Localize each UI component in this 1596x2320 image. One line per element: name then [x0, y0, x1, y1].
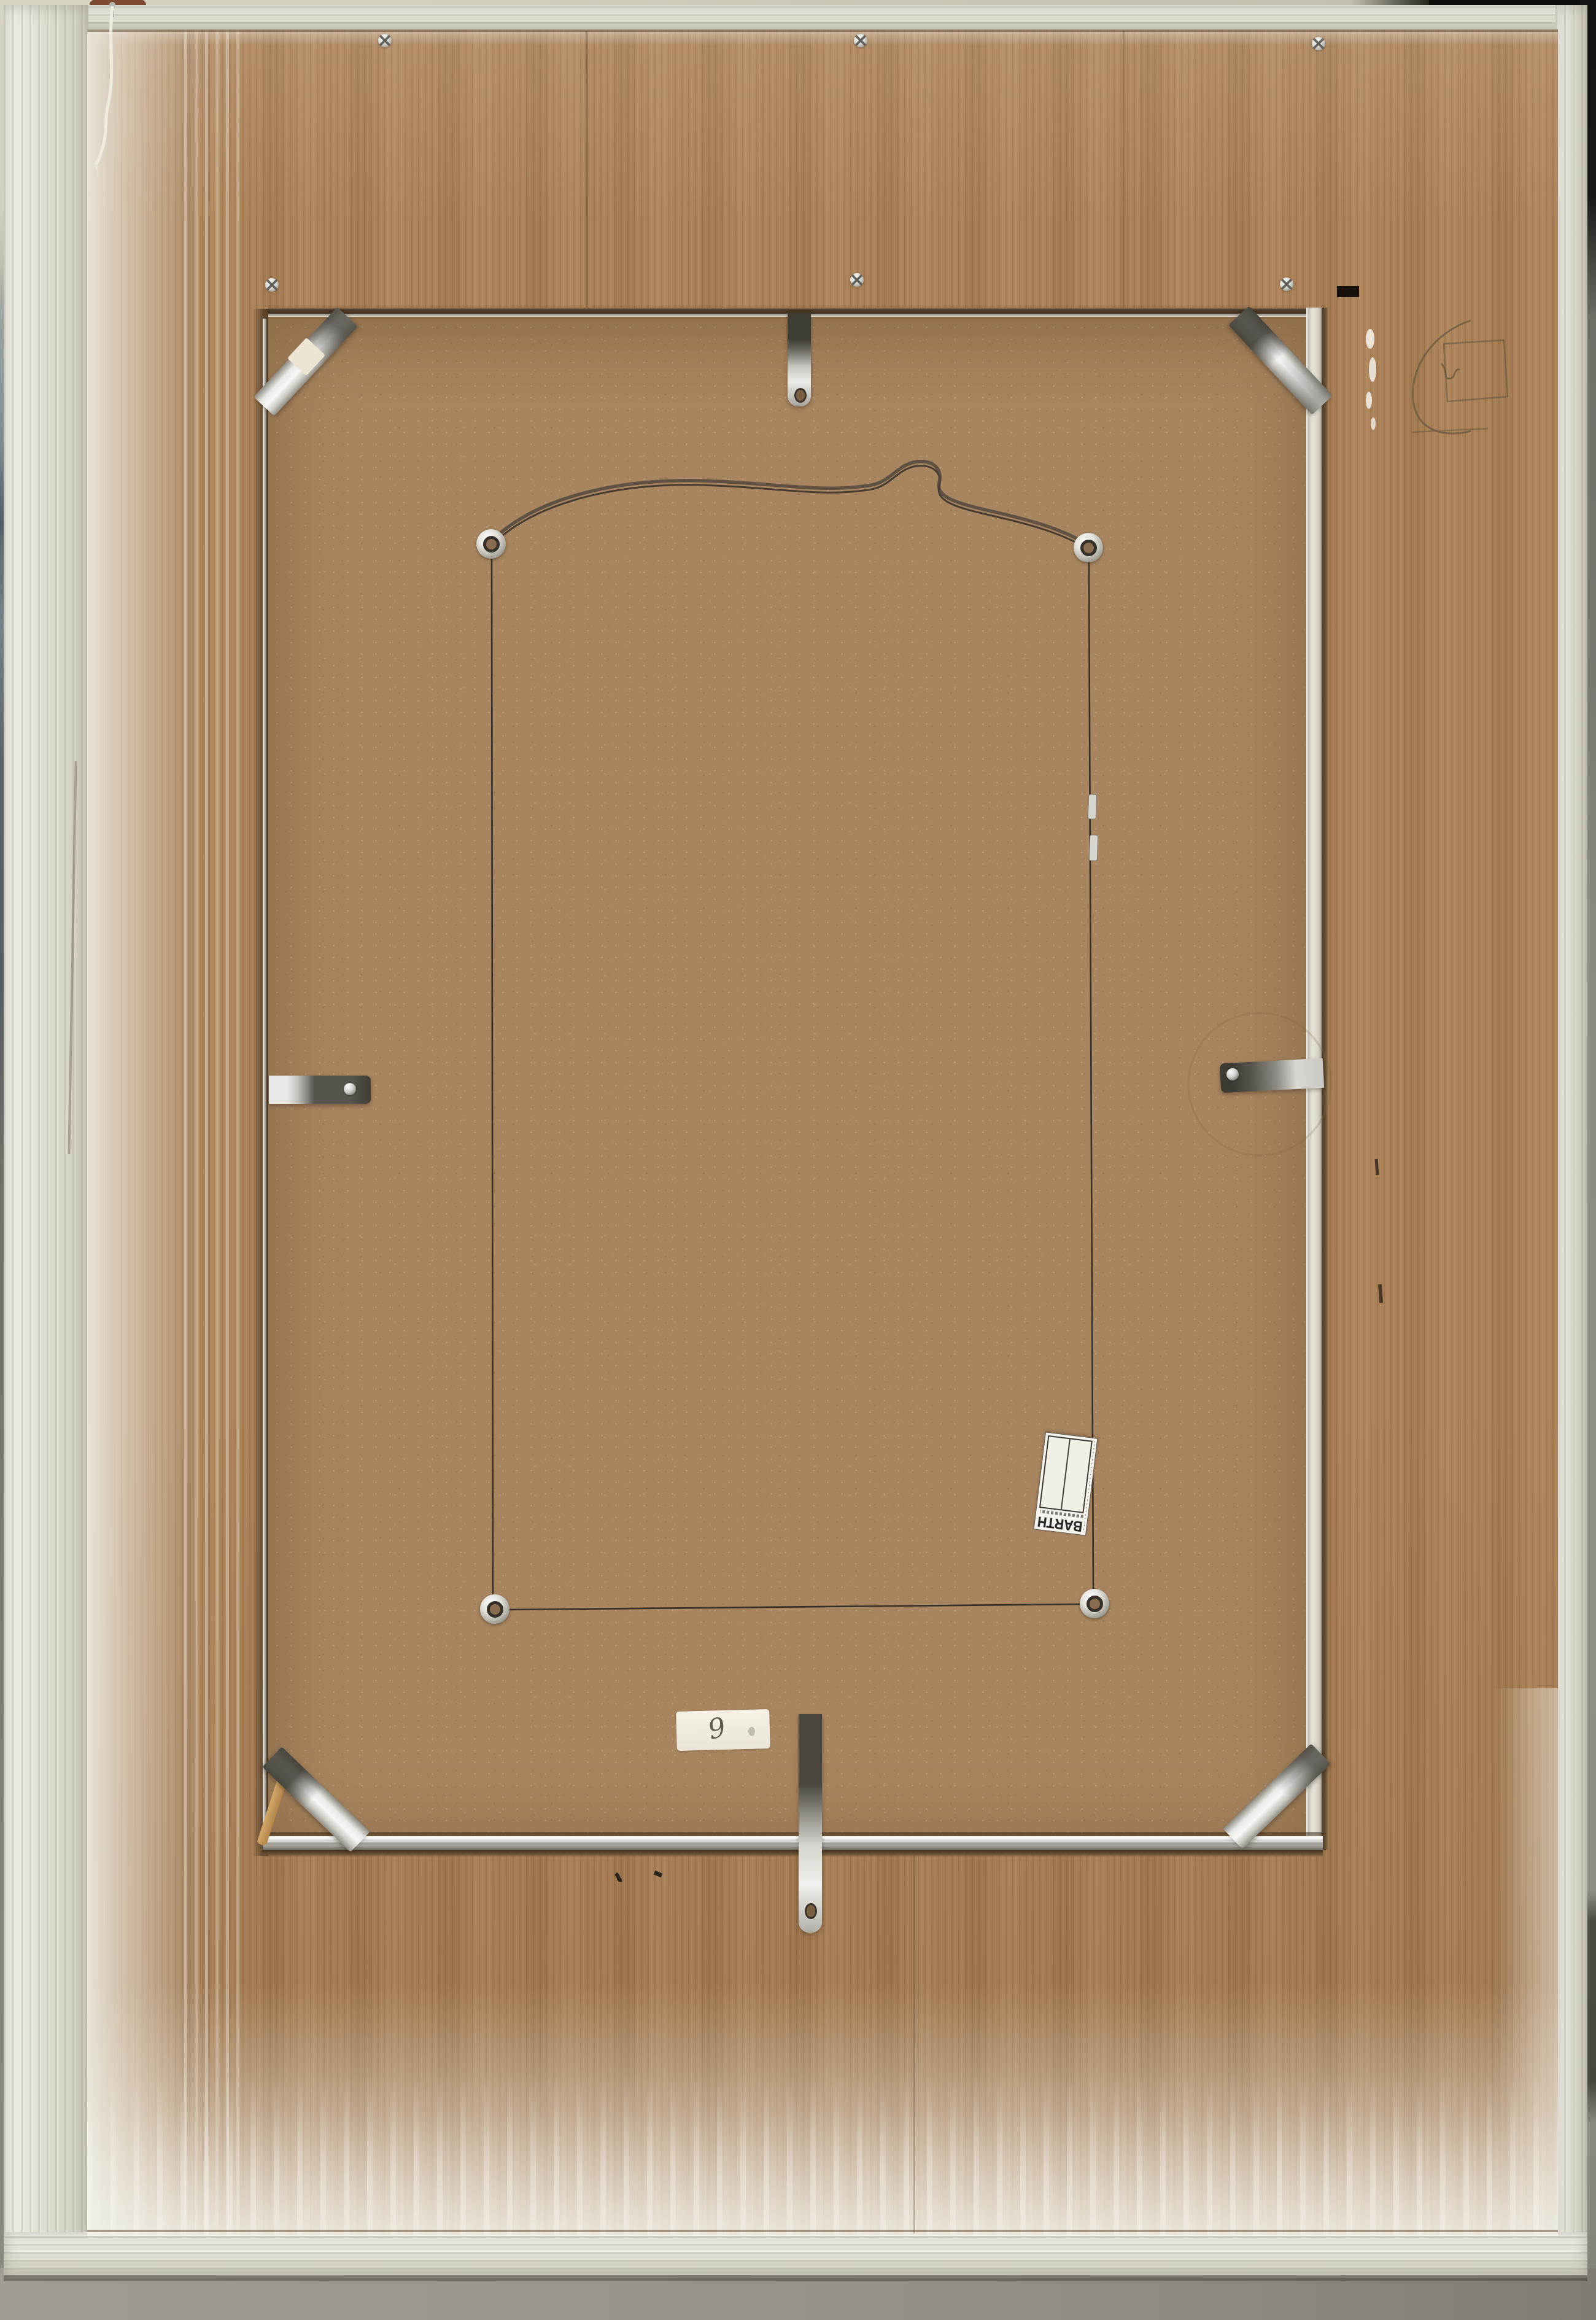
- handwritten-tag: 9: [676, 1709, 770, 1751]
- eyelet-screw-bottom-left: [480, 1594, 509, 1624]
- eyelet-hole: [1087, 1596, 1103, 1612]
- label-table-divider: [1061, 1439, 1071, 1509]
- pencil-doodle-line: [1412, 429, 1488, 432]
- cord-crimp: [1088, 794, 1096, 819]
- tag-smudge: [748, 1727, 755, 1736]
- panel-screw: [265, 278, 279, 292]
- scratch-circle: [1188, 1013, 1331, 1155]
- eyelet-hole: [483, 536, 500, 553]
- panel-screw: [1280, 277, 1293, 291]
- wood-knot: [1380, 1284, 1381, 1303]
- frame-floor-shadow: [4, 2275, 1587, 2281]
- tag-number-text: 9: [705, 1712, 729, 1746]
- eyelet-screw-top-left: [476, 529, 506, 559]
- pencil-doodle-scribble: [1441, 363, 1460, 379]
- paint-dab: [1366, 392, 1372, 409]
- hanging-wire: [491, 462, 1088, 545]
- eyelet-hole: [1080, 540, 1097, 556]
- eyelet-screw-top-right: [1074, 533, 1103, 562]
- overlay-drawing: [0, 0, 1596, 2320]
- eyelet-hole: [487, 1601, 503, 1618]
- paint-dab: [1369, 357, 1376, 382]
- cord-bottom: [506, 1604, 1081, 1610]
- pencil-mark: [654, 1872, 662, 1876]
- cord-left: [492, 557, 493, 1595]
- pencil-doodle-box: [1444, 340, 1508, 402]
- cord-right: [1089, 561, 1093, 1590]
- panel-screw: [854, 34, 867, 47]
- paint-dab: [1371, 417, 1376, 430]
- paint-dab: [1366, 329, 1374, 349]
- photo-frame-back: BARTH 9: [0, 0, 1596, 2320]
- string-fray: [90, 165, 98, 175]
- cord-crimp: [1089, 835, 1098, 861]
- hanging-string: [96, 6, 112, 165]
- label-body: BARTH: [1034, 1432, 1095, 1535]
- panel-screw: [850, 273, 864, 287]
- label-table: [1039, 1435, 1093, 1513]
- panel-screw: [378, 34, 392, 47]
- hanging-wire-strand: [491, 466, 1088, 549]
- eyelet-screw-bottom-right: [1080, 1589, 1109, 1618]
- wood-knot: [1376, 1159, 1377, 1175]
- panel-screw: [1312, 37, 1325, 50]
- pencil-mark: [616, 1874, 622, 1880]
- pencil-doodle-arc: [1413, 320, 1471, 433]
